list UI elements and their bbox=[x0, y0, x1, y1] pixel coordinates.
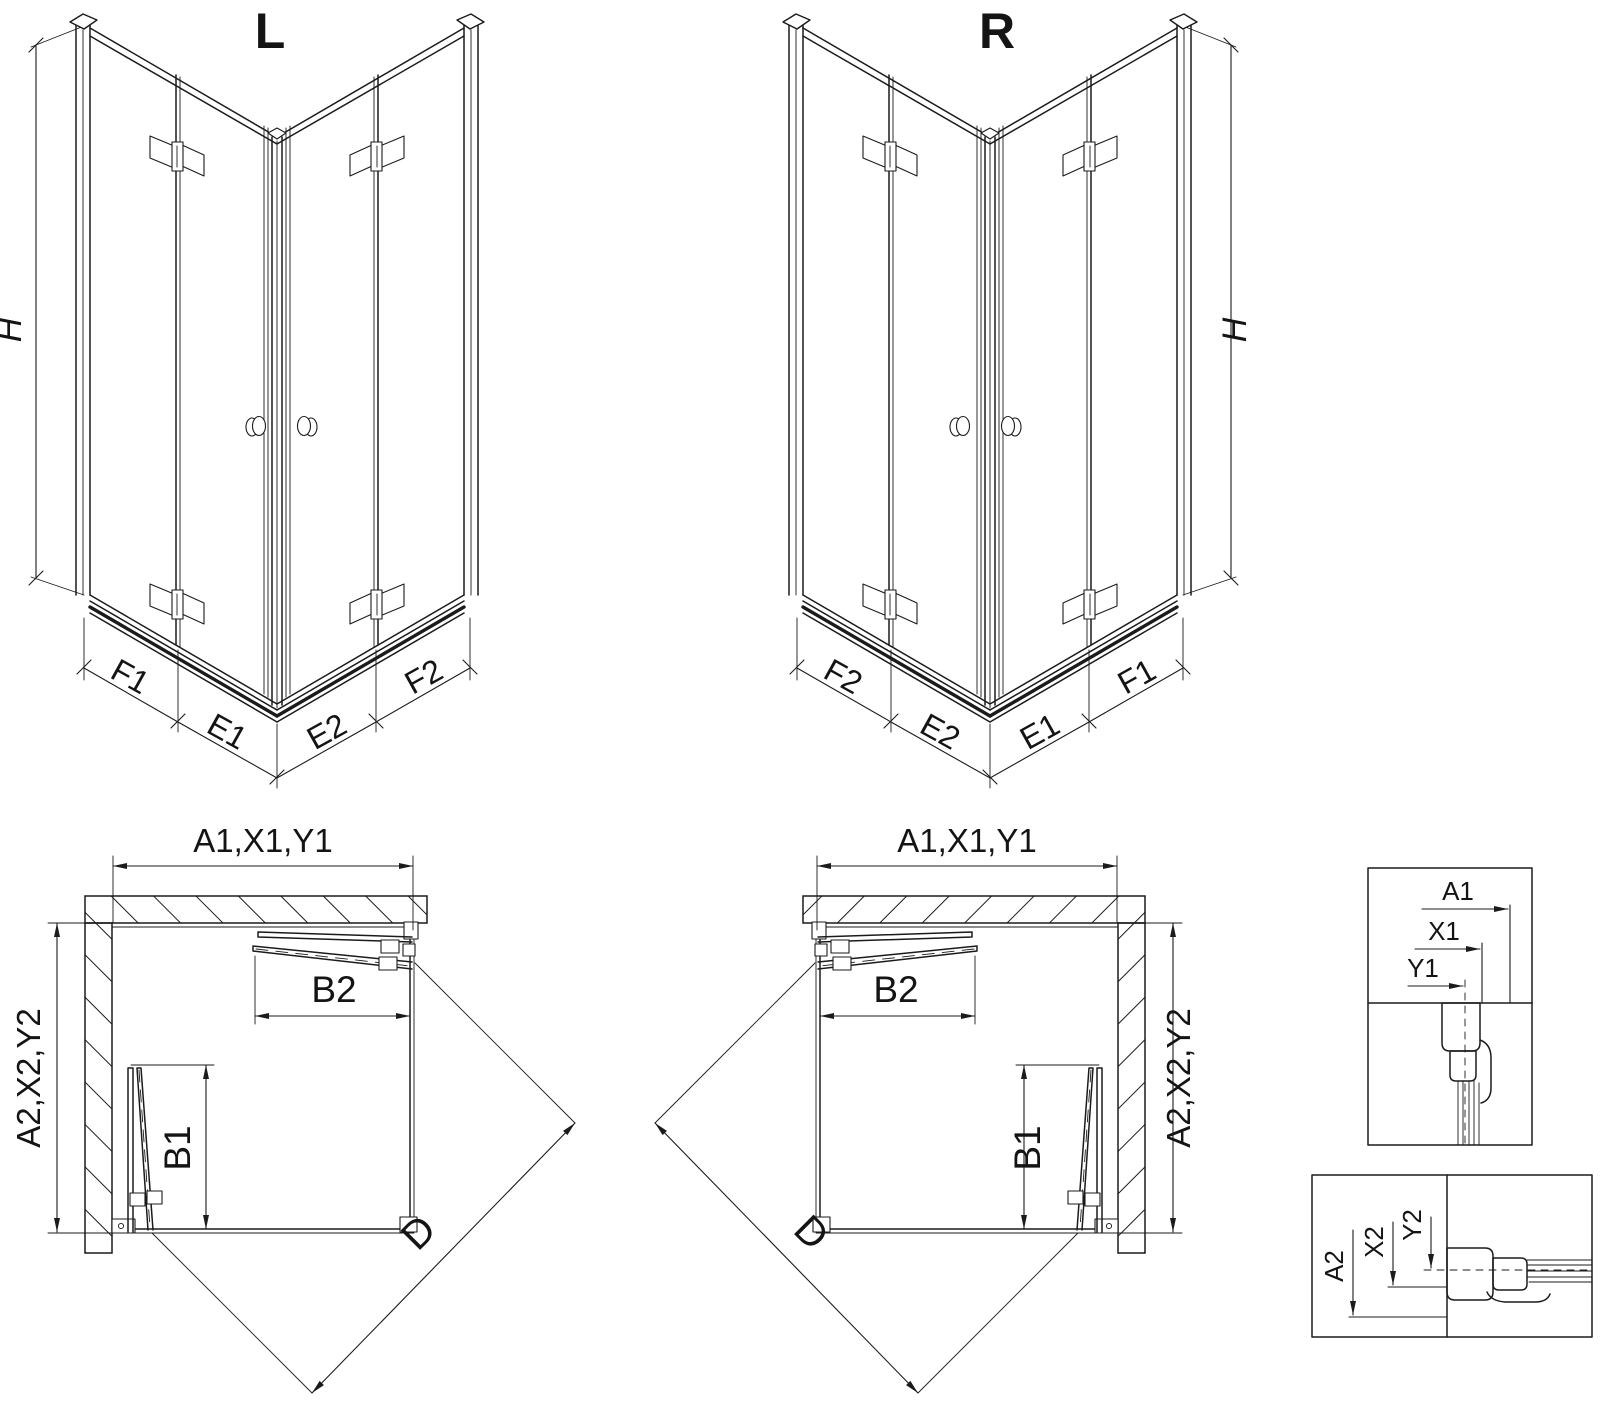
detail-y2-label: Y2 bbox=[1397, 1209, 1427, 1241]
shower-enclosure-diagram: L H F1 E1 E2 F2 R H F2 E2 E1 F1 bbox=[0, 0, 1600, 1413]
plan-view-right-geometry bbox=[655, 856, 1182, 1393]
diagonal-dim-label: D bbox=[785, 1207, 837, 1259]
plan-view-left-labels: A1,X1,Y1 A2,X2,Y2 B2 B1 D bbox=[10, 822, 445, 1259]
width-dim-label: A1,X1,Y1 bbox=[897, 822, 1036, 859]
door-b2-label: B2 bbox=[311, 969, 356, 1010]
width-dim-label: A1,X1,Y1 bbox=[193, 822, 332, 859]
segment-f1-label: F1 bbox=[105, 652, 155, 702]
technical-drawing-page: L H F1 E1 E2 F2 R H F2 E2 E1 F1 bbox=[0, 0, 1600, 1413]
depth-dim-label: A2,X2,Y2 bbox=[10, 1008, 47, 1147]
handle-knob-icon bbox=[246, 417, 266, 437]
detail-a2-label: A2 bbox=[1319, 1250, 1349, 1282]
segment-e1-label: E1 bbox=[1014, 706, 1066, 756]
height-dim-label: H bbox=[0, 317, 29, 342]
door-b2-label: B2 bbox=[873, 969, 918, 1010]
segment-e1-label: E1 bbox=[201, 706, 253, 756]
segment-e2-label: E2 bbox=[914, 706, 966, 756]
plan-view-geometry bbox=[48, 856, 575, 1393]
detail-a1-label: A1 bbox=[1442, 876, 1474, 906]
height-dim-label: H bbox=[1216, 317, 1254, 342]
wall-hatch bbox=[85, 923, 112, 1253]
door-b1-label: B1 bbox=[157, 1125, 198, 1170]
diagonal-dim-label: D bbox=[393, 1207, 445, 1259]
view-title-left: L bbox=[255, 3, 286, 59]
hinge-icon bbox=[150, 136, 204, 176]
detail-x2-label: X2 bbox=[1359, 1226, 1389, 1258]
wall-hatch bbox=[85, 896, 427, 923]
hinge-icon bbox=[150, 584, 204, 624]
hinge-icon bbox=[350, 136, 404, 176]
door-b1-label: B1 bbox=[1007, 1125, 1048, 1170]
segment-f2-label: F2 bbox=[399, 652, 449, 702]
segment-f2-label: F2 bbox=[818, 652, 868, 702]
detail-view-bottom: A2 X2 Y2 bbox=[1312, 1175, 1592, 1337]
detail-y1-label: Y1 bbox=[1407, 953, 1439, 983]
iso-view-right-labels: R H F2 E2 E1 F1 bbox=[818, 3, 1254, 757]
detail-x1-label: X1 bbox=[1428, 916, 1460, 946]
view-title-right: R bbox=[979, 3, 1015, 59]
segment-f1-label: F1 bbox=[1112, 652, 1162, 702]
segment-e2-label: E2 bbox=[301, 706, 353, 756]
bifold-door-plan bbox=[253, 932, 415, 970]
depth-dim-label: A2,X2,Y2 bbox=[1160, 1008, 1197, 1147]
hinge-icon bbox=[350, 584, 404, 624]
handle-knob-icon bbox=[298, 417, 318, 437]
detail-view-top: A1 X1 Y1 bbox=[1368, 868, 1532, 1145]
